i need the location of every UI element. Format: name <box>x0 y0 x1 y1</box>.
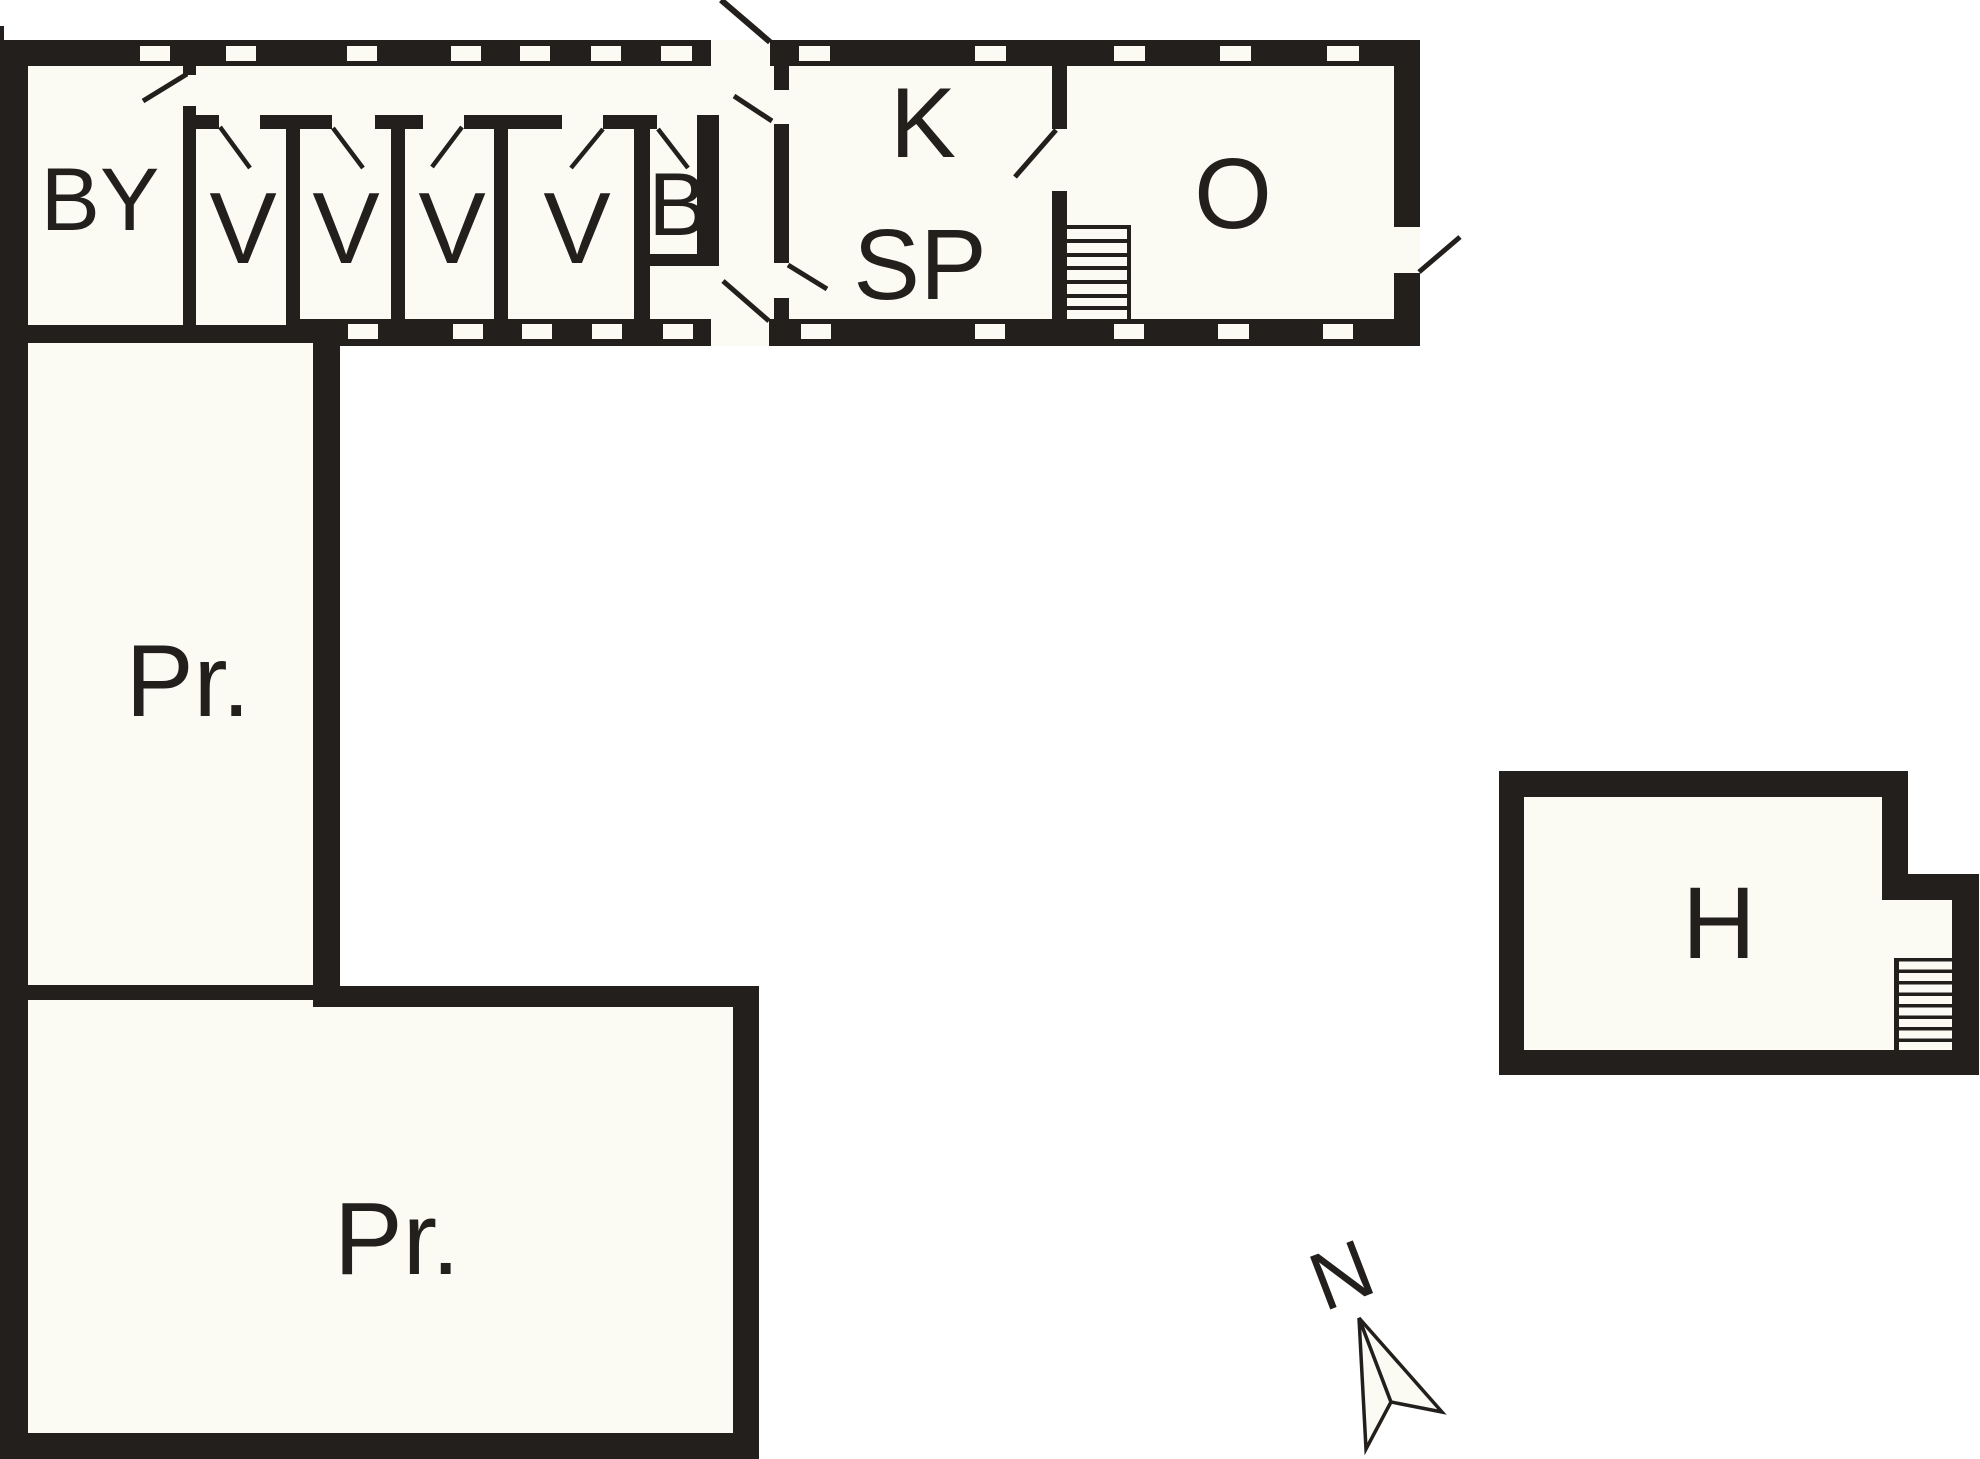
svg-text:K: K <box>890 67 956 178</box>
svg-text:O: O <box>1194 138 1272 250</box>
svg-text:H: H <box>1682 866 1756 980</box>
svg-text:BY: BY <box>41 149 160 249</box>
svg-text:V: V <box>312 173 379 285</box>
svg-text:Pr.: Pr. <box>126 624 251 738</box>
svg-text:SP: SP <box>853 209 986 321</box>
svg-text:Pr.: Pr. <box>334 1181 460 1296</box>
svg-text:V: V <box>543 173 610 285</box>
svg-text:B: B <box>648 154 707 254</box>
svg-text:V: V <box>209 173 276 285</box>
svg-text:V: V <box>418 173 485 285</box>
